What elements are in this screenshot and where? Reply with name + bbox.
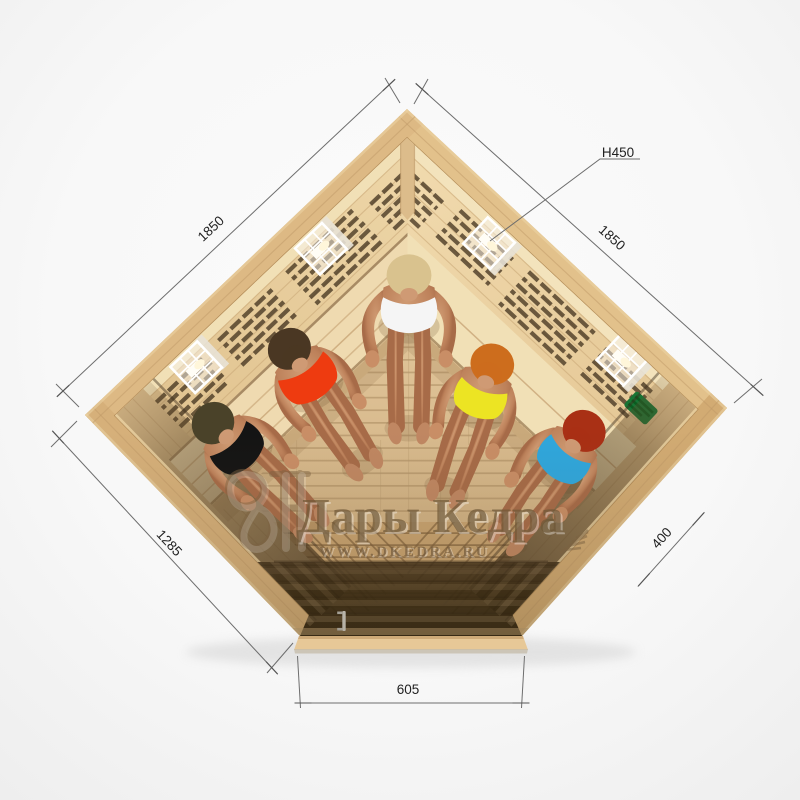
svg-text:H450: H450 — [602, 145, 634, 160]
svg-text:605: 605 — [397, 682, 420, 697]
svg-text:WWW.DKEDRA.RU: WWW.DKEDRA.RU — [319, 544, 489, 560]
svg-text:Дары Кедра: Дары Кедра — [296, 488, 563, 543]
